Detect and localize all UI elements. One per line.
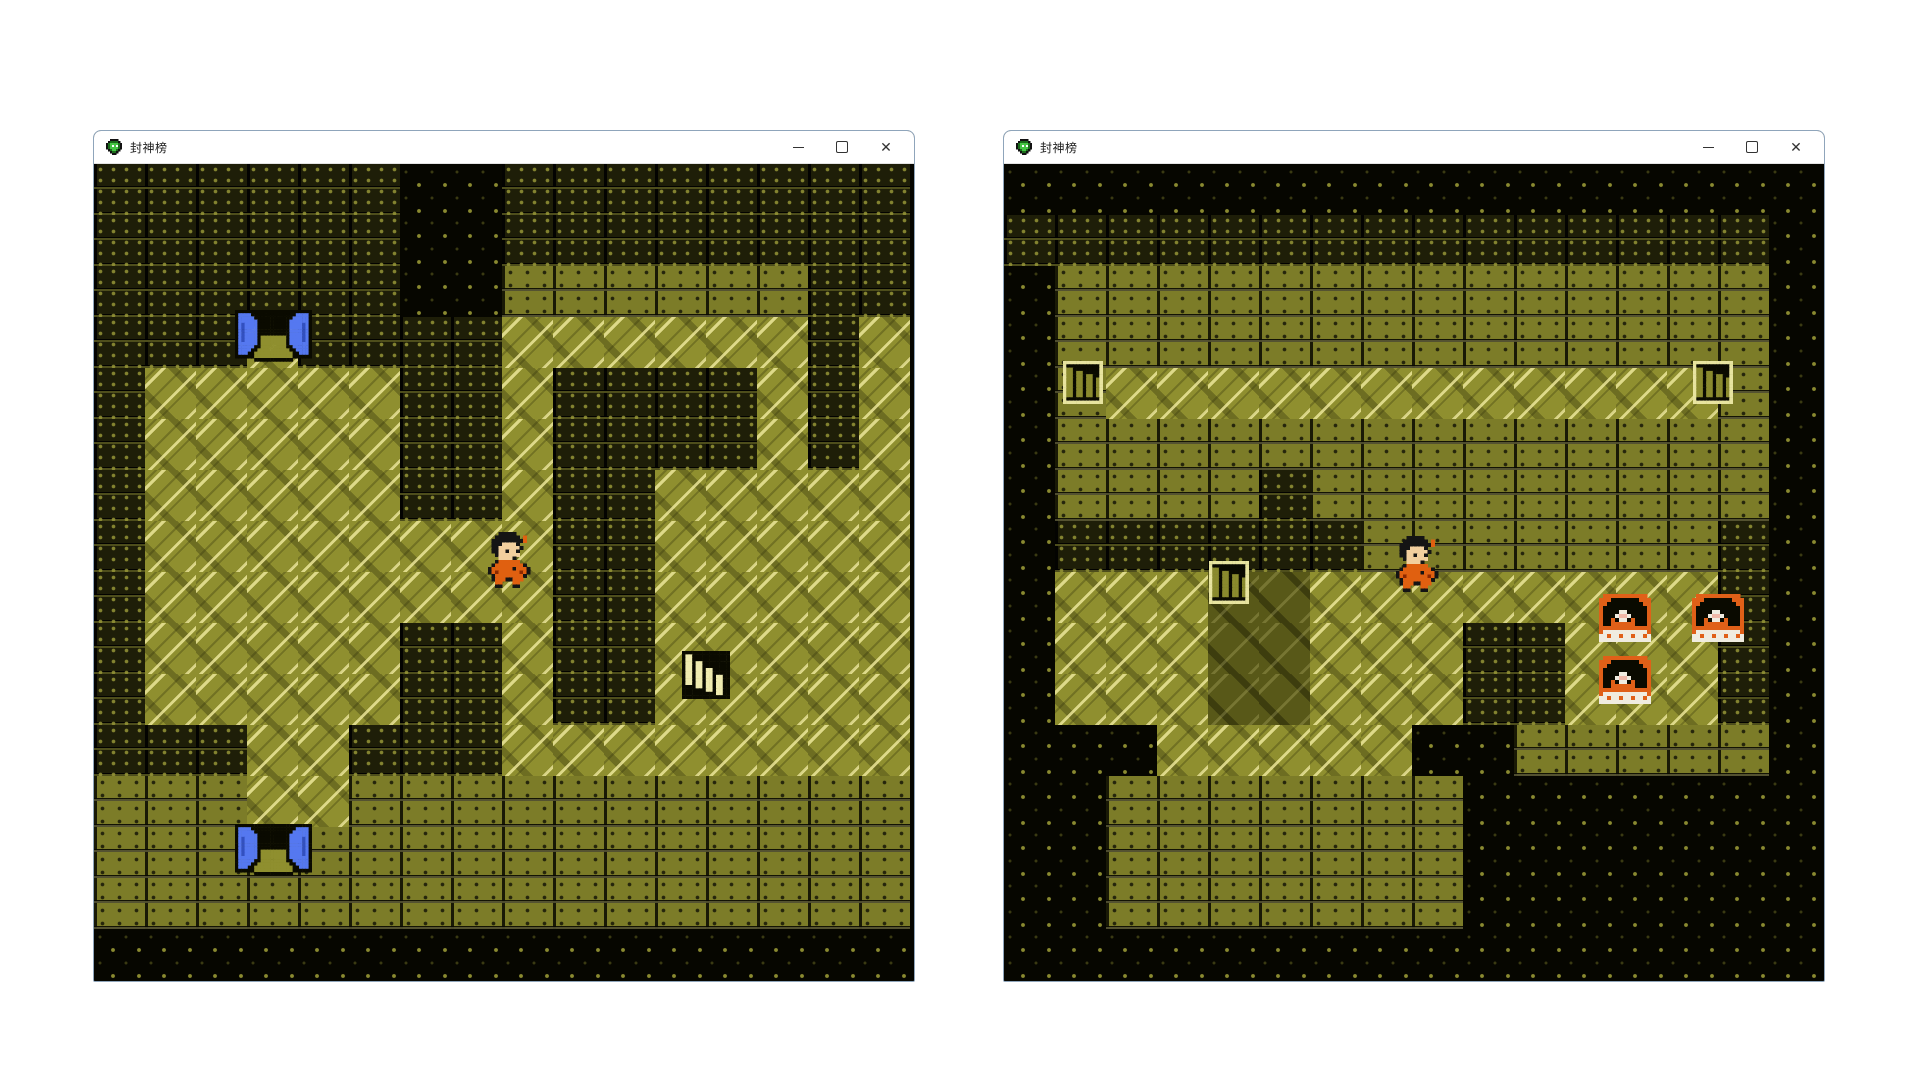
- floor-tile: [145, 572, 196, 623]
- brick-wall-tile: [655, 776, 706, 827]
- brick-wall-tile: [859, 776, 910, 827]
- dark-brick-tile: [451, 470, 502, 521]
- floor-tile: [502, 317, 553, 368]
- dark-brick-tile: [145, 266, 196, 317]
- minimize-button[interactable]: [776, 131, 820, 163]
- brick-wall-tile: [757, 878, 808, 929]
- void-tile: [1004, 929, 1055, 980]
- brick-wall-tile: [1616, 470, 1667, 521]
- brick-wall-tile: [145, 827, 196, 878]
- brick-wall-tile: [655, 827, 706, 878]
- dark-brick-tile: [1565, 215, 1616, 266]
- dark-brick-tile: [1004, 215, 1055, 266]
- void-tile: [1463, 725, 1514, 776]
- floor-tile: [757, 368, 808, 419]
- floor-tile: [502, 470, 553, 521]
- dark-brick-tile: [196, 725, 247, 776]
- floor-tile: [1412, 623, 1463, 674]
- floor-tile: [349, 572, 400, 623]
- void-tile: [1769, 725, 1820, 776]
- blue-door-top: [235, 310, 312, 362]
- void-tile: [1004, 470, 1055, 521]
- brick-wall-tile: [1565, 470, 1616, 521]
- floor-tile: [1055, 572, 1106, 623]
- brick-wall-tile: [706, 266, 757, 317]
- brick-wall-tile: [247, 878, 298, 929]
- dark-brick-tile: [1259, 521, 1310, 572]
- floor-tile: [298, 419, 349, 470]
- brick-wall-tile: [1667, 725, 1718, 776]
- floor-tile: [1106, 368, 1157, 419]
- dark-brick-tile: [451, 674, 502, 725]
- dark-brick-tile: [1361, 215, 1412, 266]
- floor-tile: [349, 521, 400, 572]
- floor-tile: [400, 521, 451, 572]
- brick-wall-tile: [1412, 470, 1463, 521]
- void-tile: [1769, 674, 1820, 725]
- void-tile: [1106, 929, 1157, 980]
- void-tile: [451, 266, 502, 317]
- shaded-floor-tile: [1208, 623, 1259, 674]
- dark-brick-tile: [400, 368, 451, 419]
- close-button[interactable]: ✕: [864, 131, 908, 163]
- dark-brick-tile: [808, 317, 859, 368]
- brick-wall-tile: [1667, 470, 1718, 521]
- void-tile: [298, 929, 349, 980]
- brick-wall-tile: [655, 266, 706, 317]
- dark-brick-tile: [1667, 215, 1718, 266]
- floor-tile: [706, 725, 757, 776]
- player-sprite: [488, 532, 534, 588]
- floor-tile: [1463, 368, 1514, 419]
- brick-wall-tile: [604, 776, 655, 827]
- brick-wall-tile: [1208, 827, 1259, 878]
- dark-brick-tile: [655, 164, 706, 215]
- void-tile: [1412, 164, 1463, 215]
- brick-wall-tile: [1616, 521, 1667, 572]
- dark-brick-tile: [1514, 674, 1565, 725]
- game-window-left: 封神榜 ✕: [93, 130, 915, 982]
- void-tile: [451, 164, 502, 215]
- brick-wall-tile: [604, 266, 655, 317]
- void-tile: [1463, 878, 1514, 929]
- floor-tile: [808, 623, 859, 674]
- floor-tile: [859, 623, 910, 674]
- floor-tile: [808, 725, 859, 776]
- dark-brick-tile: [1055, 521, 1106, 572]
- void-tile: [1157, 929, 1208, 980]
- brick-wall-tile: [1310, 776, 1361, 827]
- floor-tile: [706, 470, 757, 521]
- brick-wall-tile: [1055, 470, 1106, 521]
- void-tile: [1514, 164, 1565, 215]
- void-tile: [1004, 266, 1055, 317]
- void-tile: [1514, 827, 1565, 878]
- floor-tile: [808, 674, 859, 725]
- brick-wall-tile: [1106, 470, 1157, 521]
- void-tile: [1769, 215, 1820, 266]
- floor-tile: [1310, 725, 1361, 776]
- void-tile: [1667, 827, 1718, 878]
- floor-tile: [298, 368, 349, 419]
- game-window-right: 封神榜 ✕: [1003, 130, 1825, 982]
- brick-wall-tile: [1106, 419, 1157, 470]
- floor-tile: [706, 317, 757, 368]
- brick-wall-tile: [1310, 317, 1361, 368]
- floor-tile: [1055, 674, 1106, 725]
- brick-wall-tile: [1463, 419, 1514, 470]
- dark-brick-tile: [1463, 674, 1514, 725]
- brick-wall-tile: [1310, 419, 1361, 470]
- floor-tile: [145, 470, 196, 521]
- void-tile: [247, 929, 298, 980]
- floor-tile: [349, 419, 400, 470]
- floor-tile: [757, 623, 808, 674]
- dark-brick-tile: [808, 266, 859, 317]
- close-button[interactable]: ✕: [1774, 131, 1818, 163]
- brick-wall-tile: [145, 776, 196, 827]
- void-tile: [1769, 470, 1820, 521]
- void-tile: [1055, 725, 1106, 776]
- void-tile: [1004, 419, 1055, 470]
- brick-wall-tile: [1055, 266, 1106, 317]
- dark-brick-tile: [808, 368, 859, 419]
- brick-wall-tile: [349, 878, 400, 929]
- floor-tile: [1667, 674, 1718, 725]
- void-tile: [553, 929, 604, 980]
- dark-brick-tile: [757, 164, 808, 215]
- dark-brick-tile: [706, 419, 757, 470]
- brick-wall-tile: [859, 827, 910, 878]
- void-tile: [1616, 164, 1667, 215]
- void-tile: [502, 929, 553, 980]
- void-tile: [706, 929, 757, 980]
- dark-brick-tile: [94, 215, 145, 266]
- void-tile: [1667, 776, 1718, 827]
- dark-brick-tile: [1259, 470, 1310, 521]
- floor-tile: [604, 317, 655, 368]
- dark-brick-tile: [94, 572, 145, 623]
- brick-wall-tile: [400, 776, 451, 827]
- brick-wall-tile: [1412, 419, 1463, 470]
- dark-brick-tile: [1514, 623, 1565, 674]
- void-tile: [349, 929, 400, 980]
- floor-tile: [808, 572, 859, 623]
- floor-tile: [247, 725, 298, 776]
- brick-wall-tile: [1208, 878, 1259, 929]
- brick-wall-tile: [451, 827, 502, 878]
- brick-wall-tile: [196, 878, 247, 929]
- floor-tile: [655, 521, 706, 572]
- void-tile: [1565, 929, 1616, 980]
- floor-tile: [247, 776, 298, 827]
- shaded-floor-tile: [1259, 674, 1310, 725]
- dark-brick-tile: [1463, 623, 1514, 674]
- brick-wall-tile: [1361, 317, 1412, 368]
- dark-brick-tile: [94, 419, 145, 470]
- brick-wall-tile: [1463, 317, 1514, 368]
- minimize-icon: [1703, 147, 1714, 148]
- brick-wall-tile: [1157, 470, 1208, 521]
- dark-brick-tile: [145, 725, 196, 776]
- dark-brick-tile: [1310, 521, 1361, 572]
- void-tile: [1769, 827, 1820, 878]
- dark-brick-tile: [349, 215, 400, 266]
- brick-wall-tile: [757, 827, 808, 878]
- dark-brick-tile: [400, 317, 451, 368]
- dark-brick-tile: [604, 368, 655, 419]
- void-tile: [1412, 725, 1463, 776]
- brick-wall-tile: [1157, 266, 1208, 317]
- void-tile: [1004, 623, 1055, 674]
- dark-brick-tile: [451, 419, 502, 470]
- void-tile: [1565, 827, 1616, 878]
- void-tile: [1769, 929, 1820, 980]
- floor-tile: [196, 572, 247, 623]
- dark-brick-tile: [145, 317, 196, 368]
- blue-door-bottom: [235, 824, 312, 876]
- dark-brick-tile: [706, 164, 757, 215]
- floor-tile: [1208, 725, 1259, 776]
- void-tile: [1259, 929, 1310, 980]
- brick-wall-tile: [1157, 827, 1208, 878]
- floor-tile: [349, 674, 400, 725]
- dark-brick-tile: [706, 368, 757, 419]
- stairs-up-middle: [1209, 561, 1249, 604]
- dark-brick-tile: [808, 164, 859, 215]
- floor-tile: [400, 572, 451, 623]
- floor-tile: [298, 470, 349, 521]
- floor-tile: [859, 368, 910, 419]
- brick-wall-tile: [1259, 317, 1310, 368]
- dark-brick-tile: [400, 623, 451, 674]
- brick-wall-tile: [1565, 317, 1616, 368]
- void-tile: [1004, 878, 1055, 929]
- void-tile: [1718, 827, 1769, 878]
- void-tile: [1565, 776, 1616, 827]
- maximize-button[interactable]: [1730, 131, 1774, 163]
- brick-wall-tile: [706, 776, 757, 827]
- brick-wall-tile: [349, 827, 400, 878]
- floor-tile: [1208, 368, 1259, 419]
- floor-tile: [859, 317, 910, 368]
- brick-wall-tile: [1667, 521, 1718, 572]
- dark-brick-tile: [349, 266, 400, 317]
- void-tile: [1769, 521, 1820, 572]
- void-tile: [1055, 164, 1106, 215]
- brick-wall-tile: [808, 827, 859, 878]
- desktop: { "windows": [ { "title": "封神榜", "x": 93…: [0, 0, 1920, 1080]
- brick-wall-tile: [1514, 317, 1565, 368]
- stairs-up-right: [1693, 361, 1733, 404]
- dark-brick-tile: [859, 164, 910, 215]
- floor-tile: [247, 470, 298, 521]
- void-tile: [1565, 878, 1616, 929]
- brick-wall-tile: [1208, 470, 1259, 521]
- app-icon: [106, 139, 122, 155]
- brick-wall-tile: [1361, 266, 1412, 317]
- brick-wall-tile: [553, 827, 604, 878]
- brick-wall-tile: [1514, 470, 1565, 521]
- brick-wall-tile: [1565, 725, 1616, 776]
- brick-wall-tile: [1259, 776, 1310, 827]
- dark-brick-tile: [298, 164, 349, 215]
- void-tile: [1616, 776, 1667, 827]
- floor-tile: [196, 470, 247, 521]
- dark-brick-tile: [1310, 215, 1361, 266]
- brick-wall-tile: [1616, 317, 1667, 368]
- brick-wall-tile: [1361, 776, 1412, 827]
- void-tile: [196, 929, 247, 980]
- floor-tile: [145, 623, 196, 674]
- floor-tile: [1106, 572, 1157, 623]
- brick-wall-tile: [1412, 266, 1463, 317]
- shaded-floor-tile: [1259, 572, 1310, 623]
- brick-wall-tile: [757, 776, 808, 827]
- void-tile: [1055, 776, 1106, 827]
- dark-brick-tile: [553, 164, 604, 215]
- brick-wall-tile: [1259, 419, 1310, 470]
- floor-tile: [1565, 368, 1616, 419]
- void-tile: [1514, 878, 1565, 929]
- brick-wall-tile: [1616, 725, 1667, 776]
- window-title: 封神榜: [1040, 139, 1078, 156]
- dark-brick-tile: [451, 317, 502, 368]
- dark-brick-tile: [655, 419, 706, 470]
- floor-tile: [502, 674, 553, 725]
- floor-tile: [247, 419, 298, 470]
- void-tile: [1718, 164, 1769, 215]
- dark-brick-tile: [400, 674, 451, 725]
- dark-brick-tile: [247, 164, 298, 215]
- floor-tile: [247, 572, 298, 623]
- dark-brick-tile: [1055, 215, 1106, 266]
- brick-wall-tile: [1514, 266, 1565, 317]
- void-tile: [1157, 164, 1208, 215]
- floor-tile: [1463, 572, 1514, 623]
- minimize-button[interactable]: [1686, 131, 1730, 163]
- brick-wall-tile: [94, 776, 145, 827]
- brick-wall-tile: [553, 878, 604, 929]
- void-tile: [400, 266, 451, 317]
- dark-brick-tile: [1259, 215, 1310, 266]
- brick-wall-tile: [1106, 317, 1157, 368]
- floor-tile: [808, 521, 859, 572]
- dark-brick-tile: [349, 164, 400, 215]
- floor-tile: [655, 725, 706, 776]
- brick-wall-tile: [1208, 776, 1259, 827]
- floor-tile: [1361, 623, 1412, 674]
- title-bar[interactable]: 封神榜 ✕: [94, 131, 914, 164]
- brick-wall-tile: [1361, 878, 1412, 929]
- stairs-down: [682, 651, 730, 699]
- void-tile: [400, 164, 451, 215]
- brick-wall-tile: [502, 827, 553, 878]
- dark-brick-tile: [553, 623, 604, 674]
- void-tile: [1004, 521, 1055, 572]
- floor-tile: [553, 317, 604, 368]
- brick-wall-tile: [1259, 878, 1310, 929]
- floor-tile: [145, 674, 196, 725]
- dark-brick-tile: [145, 164, 196, 215]
- brick-wall-tile: [1514, 521, 1565, 572]
- floor-tile: [1259, 368, 1310, 419]
- title-bar[interactable]: 封神榜 ✕: [1004, 131, 1824, 164]
- brick-wall-tile: [502, 776, 553, 827]
- floor-tile: [196, 368, 247, 419]
- dark-brick-tile: [808, 215, 859, 266]
- void-tile: [400, 929, 451, 980]
- dark-brick-tile: [94, 725, 145, 776]
- void-tile: [1514, 929, 1565, 980]
- game-viewport[interactable]: [94, 164, 914, 982]
- dark-brick-tile: [1718, 521, 1769, 572]
- floor-tile: [655, 470, 706, 521]
- void-tile: [1004, 827, 1055, 878]
- dark-brick-tile: [553, 419, 604, 470]
- floor-tile: [1514, 572, 1565, 623]
- void-tile: [859, 929, 910, 980]
- dark-brick-tile: [1106, 215, 1157, 266]
- void-tile: [1004, 164, 1055, 215]
- floor-tile: [1310, 572, 1361, 623]
- void-tile: [1412, 929, 1463, 980]
- game-viewport[interactable]: [1004, 164, 1824, 982]
- stairs-up-left: [1063, 361, 1103, 404]
- floor-tile: [859, 419, 910, 470]
- void-tile: [1463, 929, 1514, 980]
- void-tile: [1616, 878, 1667, 929]
- brick-wall-tile: [1310, 470, 1361, 521]
- maximize-button[interactable]: [820, 131, 864, 163]
- maximize-icon: [836, 141, 848, 153]
- void-tile: [808, 929, 859, 980]
- void-tile: [1259, 164, 1310, 215]
- maximize-icon: [1746, 141, 1758, 153]
- brick-wall-tile: [400, 827, 451, 878]
- dark-brick-tile: [1106, 521, 1157, 572]
- dark-brick-tile: [553, 572, 604, 623]
- window-controls: ✕: [776, 131, 908, 163]
- brick-wall-tile: [706, 878, 757, 929]
- floor-tile: [1259, 725, 1310, 776]
- brick-wall-tile: [1208, 317, 1259, 368]
- brick-wall-tile: [400, 878, 451, 929]
- void-tile: [1361, 929, 1412, 980]
- dark-brick-tile: [757, 215, 808, 266]
- brick-wall-tile: [604, 878, 655, 929]
- floor-tile: [706, 572, 757, 623]
- dark-brick-tile: [94, 317, 145, 368]
- brick-wall-tile: [1718, 725, 1769, 776]
- brick-wall-tile: [196, 776, 247, 827]
- floor-tile: [1310, 623, 1361, 674]
- treasure-chest-1: [1599, 594, 1651, 642]
- floor-tile: [349, 623, 400, 674]
- void-tile: [400, 215, 451, 266]
- floor-tile: [247, 623, 298, 674]
- dark-brick-tile: [1616, 215, 1667, 266]
- brick-wall-tile: [502, 878, 553, 929]
- void-tile: [1769, 878, 1820, 929]
- dark-brick-tile: [604, 215, 655, 266]
- brick-wall-tile: [1514, 419, 1565, 470]
- brick-wall-tile: [1463, 266, 1514, 317]
- dark-brick-tile: [94, 164, 145, 215]
- floor-tile: [859, 674, 910, 725]
- dark-brick-tile: [349, 317, 400, 368]
- brick-wall-tile: [604, 827, 655, 878]
